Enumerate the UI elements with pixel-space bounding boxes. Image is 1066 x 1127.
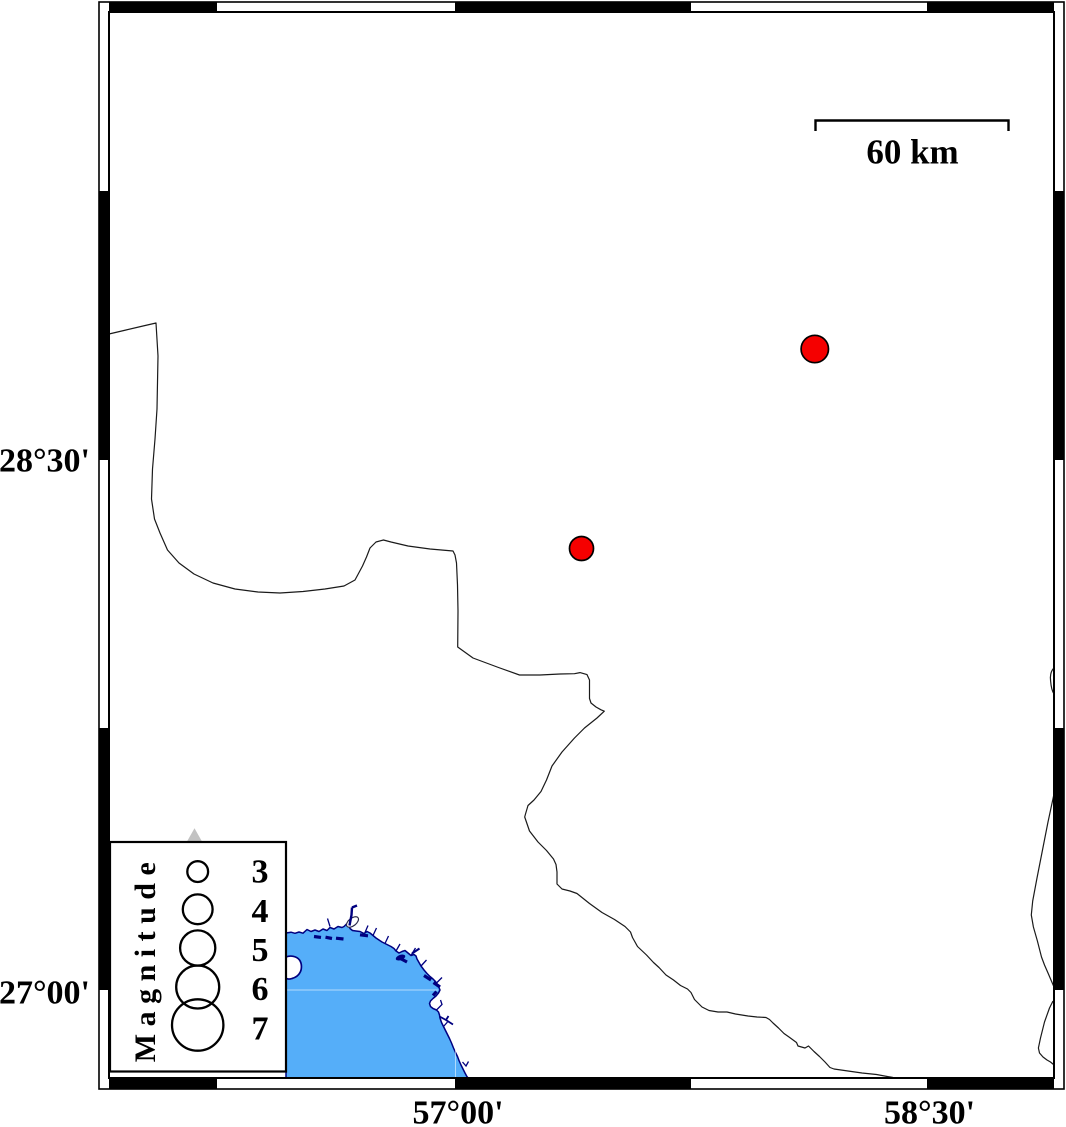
svg-text:Magnitude: Magnitude <box>129 855 162 1063</box>
svg-text:27°00': 27°00' <box>0 975 90 1012</box>
svg-text:5: 5 <box>252 932 269 969</box>
svg-text:28°30': 28°30' <box>0 443 90 480</box>
svg-text:7: 7 <box>252 1011 269 1048</box>
svg-text:3: 3 <box>252 854 269 891</box>
svg-text:4: 4 <box>252 893 269 930</box>
svg-text:60 km: 60 km <box>866 133 958 172</box>
svg-text:57°00': 57°00' <box>412 1095 503 1127</box>
svg-text:6: 6 <box>252 971 269 1008</box>
svg-text:58°30': 58°30' <box>884 1095 975 1127</box>
